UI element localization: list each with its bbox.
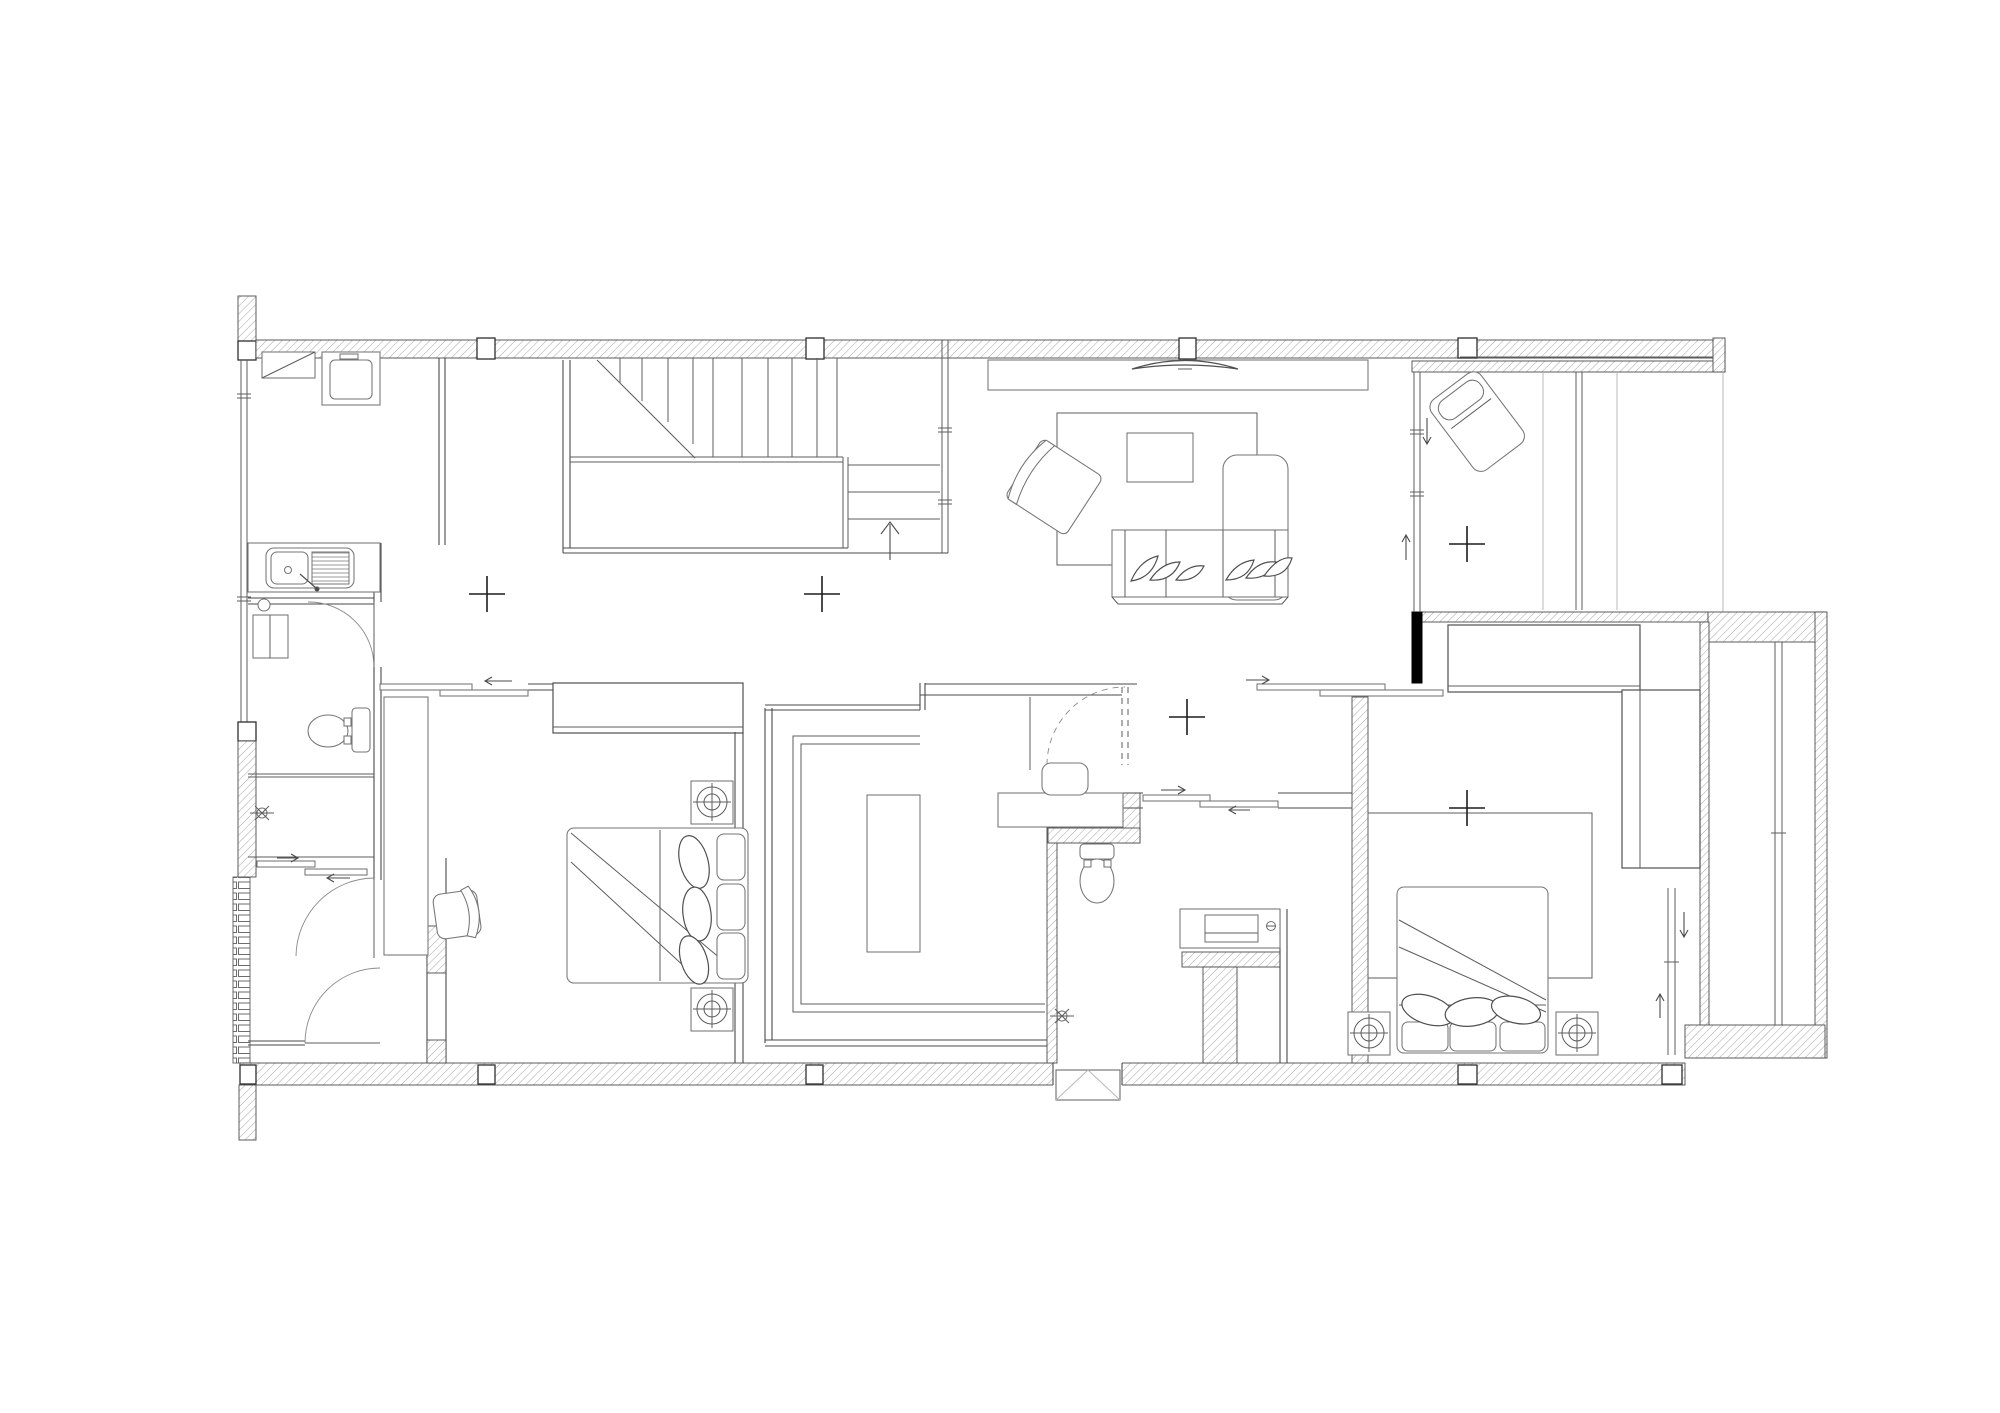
door-vestibule-b (305, 968, 380, 1043)
lightwell-bottom (1685, 1025, 1825, 1058)
laundry-room (248, 352, 380, 592)
vanity-sink (1180, 909, 1280, 948)
column (477, 338, 495, 359)
stair-up-arrow (881, 522, 899, 560)
nightstand-downlight (1348, 1012, 1390, 1055)
column (1458, 338, 1477, 358)
nightstand-downlight (691, 781, 733, 824)
column (478, 1065, 495, 1084)
parapet-cap (1713, 338, 1725, 372)
bedroom-1 (384, 697, 748, 1031)
lightwell-left (1700, 622, 1709, 1028)
bathroom-2 (1050, 844, 1280, 1023)
living-room (988, 360, 1368, 604)
floor-plan-page (0, 0, 2000, 1413)
column (240, 1065, 256, 1084)
washing-machine (322, 352, 380, 405)
column (238, 722, 256, 741)
basin-counter (998, 793, 1123, 827)
terrace (1426, 368, 1617, 610)
slider-bedroom1 (380, 677, 528, 696)
cross-marker (469, 576, 505, 612)
cross-marker (1169, 699, 1205, 735)
staircase (597, 358, 940, 560)
slider-bathroom1 (257, 854, 367, 882)
wall-basin (253, 599, 288, 658)
bedroom-2 (1348, 813, 1598, 1055)
bathroom-1 (250, 599, 370, 820)
wash-basin (1042, 763, 1088, 795)
slider-bathroom2 (1143, 786, 1278, 814)
louvered-wall (233, 877, 250, 1063)
toilet (308, 708, 370, 752)
wall-stub-top-left (238, 296, 256, 341)
cross-marker (1449, 526, 1485, 562)
survey-crosses (469, 526, 1485, 826)
kitchen-sink-counter (248, 543, 380, 592)
stair-break-line (597, 360, 695, 458)
wall-hall-top-right (1418, 612, 1708, 622)
column (806, 1065, 823, 1084)
toilet (1080, 844, 1114, 903)
bedroom1-wardrobe (553, 683, 743, 733)
lightwell-top (1708, 612, 1825, 642)
nightstand-downlight (1556, 1012, 1598, 1055)
armchair (1003, 437, 1103, 536)
column (238, 341, 256, 360)
column (806, 338, 824, 359)
desk-chair (432, 885, 483, 943)
bedroom2-wardrobe-side (1622, 690, 1700, 868)
wall-stub-bottom-left (239, 1085, 256, 1140)
door-dressing-dashed (1047, 687, 1128, 765)
coffee-table (1127, 433, 1193, 482)
nightstand-downlight (691, 988, 733, 1031)
column (1662, 1065, 1682, 1084)
desk (384, 697, 428, 955)
cross-marker (1449, 790, 1485, 826)
closet-island (867, 795, 920, 952)
walk-in-closet (793, 736, 1045, 1012)
parapet-inner (1412, 361, 1725, 372)
solid-feature-wall (1412, 612, 1422, 683)
counter-with-shelf (262, 352, 315, 378)
column (1458, 1065, 1477, 1084)
bedroom2-wardrobe-top (1448, 625, 1640, 692)
vestibule (998, 763, 1123, 827)
bed-double (567, 828, 748, 988)
cross-marker (804, 576, 840, 612)
door-vestibule-a (296, 878, 374, 958)
lightwell-right (1815, 612, 1827, 1058)
floor-plan-drawing (0, 0, 2000, 1413)
bed-double (1397, 887, 1548, 1053)
column (1179, 338, 1196, 359)
lounge-chair (1426, 368, 1528, 476)
door-bathroom1 (308, 602, 374, 667)
